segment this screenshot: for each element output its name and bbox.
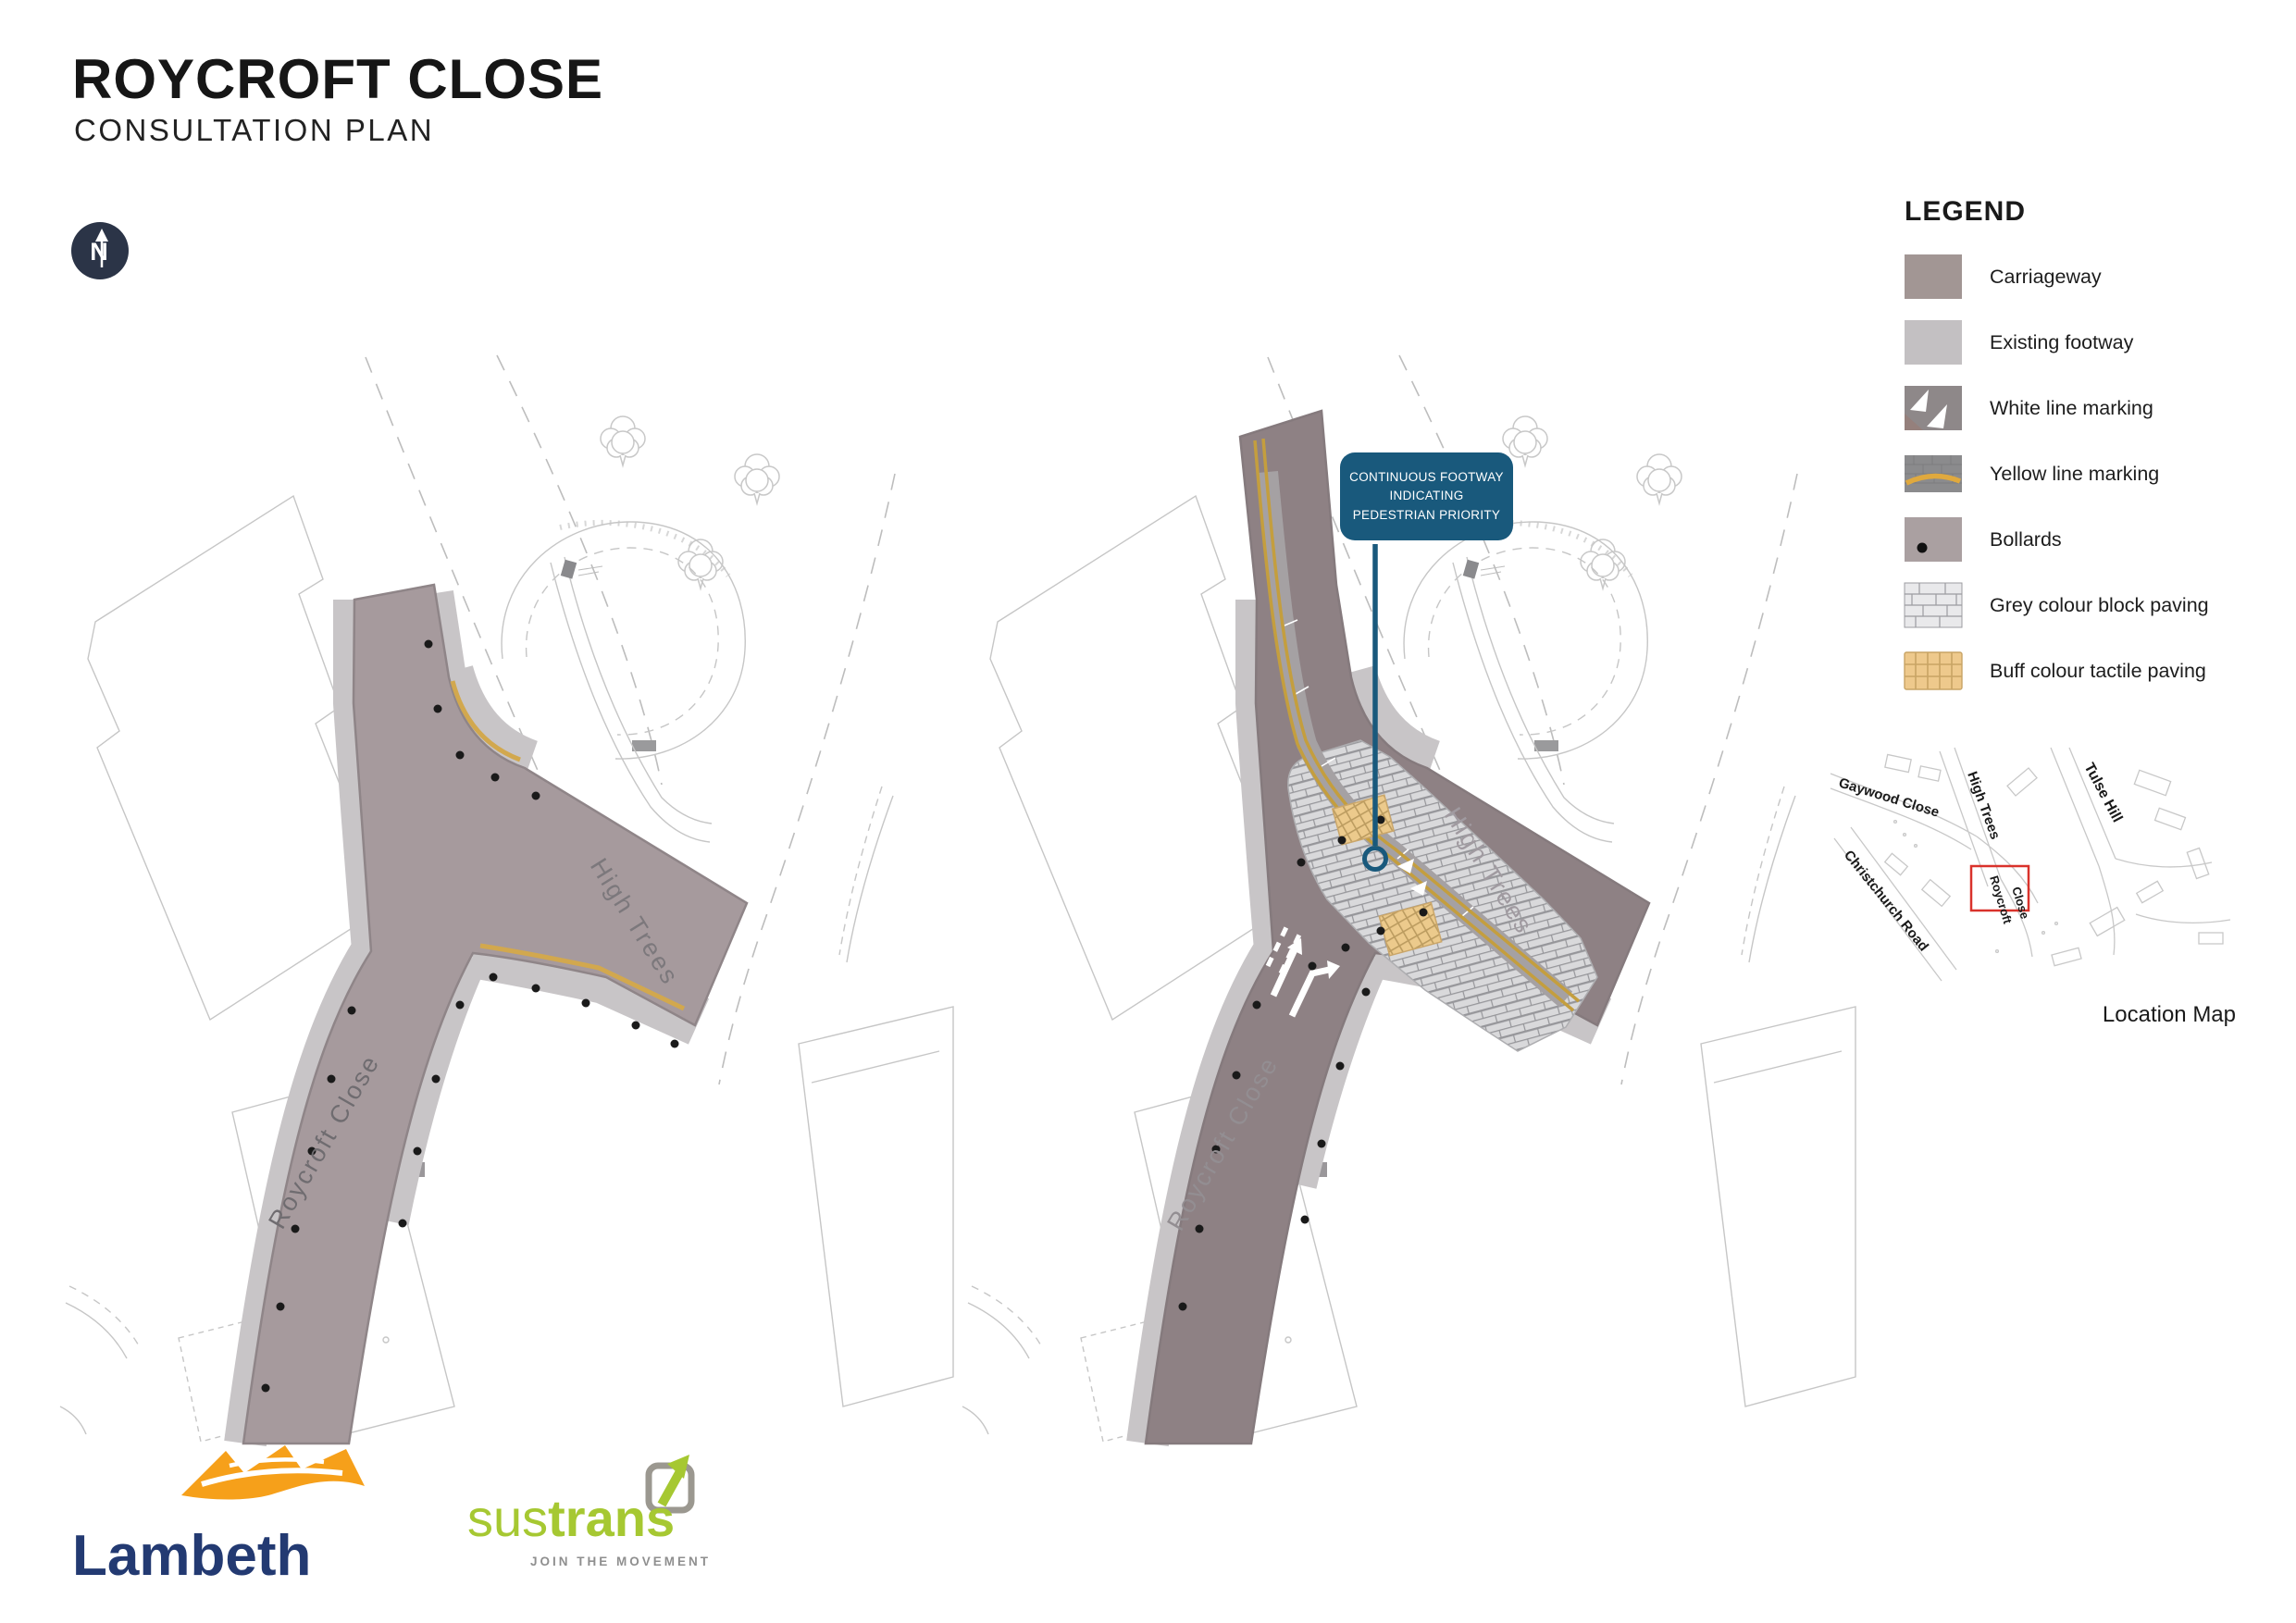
lambeth-logo: Lambeth: [63, 1434, 368, 1615]
north-arrow-icon: N: [69, 220, 130, 286]
title-block: ROYCROFT CLOSE CONSULTATION PLAN: [72, 52, 603, 148]
left-plan-existing: High Trees Roycroft Close: [60, 352, 953, 1443]
white-line-swatch-icon: [1905, 386, 1964, 430]
location-map-caption: Location Map: [1831, 1002, 2240, 1028]
legend-item-label: Buff colour tactile paving: [1990, 660, 2206, 683]
grey-block-paving-swatch-icon: [1905, 583, 1964, 627]
legend-item-label: Bollards: [1990, 528, 2062, 551]
legend-item-existing-footway: Existing footway: [1905, 319, 2275, 365]
page-subtitle: CONSULTATION PLAN: [74, 113, 603, 148]
consultation-plan-sheet: ROYCROFT CLOSE CONSULTATION PLAN N: [0, 0, 2296, 1623]
location-map: Gaywood Close High Trees Tulse Hill Chri…: [1831, 748, 2240, 1028]
sustrans-wordmark-light: sus: [467, 1489, 548, 1547]
legend-item-bollards: Bollards: [1905, 516, 2275, 563]
legend-item-white-line: White line marking: [1905, 385, 2275, 431]
existing-footway-swatch-icon: [1905, 320, 1964, 365]
legend-item-grey-block-paving: Grey colour block paving: [1905, 582, 2275, 628]
sustrans-tagline: JOIN THE MOVEMENT: [530, 1555, 711, 1568]
legend-title: LEGEND: [1905, 196, 2275, 228]
legend-item-label: Grey colour block paving: [1990, 594, 2209, 617]
legend-item-label: Yellow line marking: [1990, 463, 2159, 486]
carriageway-swatch-icon: [1905, 254, 1964, 299]
sustrans-logo: sustrans JOIN THE MOVEMENT: [467, 1458, 717, 1592]
buff-tactile-paving-swatch-icon: [1905, 652, 1964, 689]
location-map-streets: [1831, 748, 2230, 981]
yellow-line-swatch-icon: [1905, 455, 1964, 492]
legend-item-buff-tactile-paving: Buff colour tactile paving: [1905, 648, 2275, 694]
street-label-gaywood-close: Gaywood Close: [1837, 775, 1942, 821]
legend-item-label: White line marking: [1990, 397, 2153, 420]
north-letter: N: [90, 238, 108, 266]
lambeth-swoosh-icon: [181, 1445, 365, 1500]
svg-text:sustrans: sustrans: [467, 1489, 675, 1547]
bollards-swatch-icon: [1905, 517, 1964, 562]
sustrans-wordmark-bold2: trans: [548, 1489, 675, 1547]
legend-item-yellow-line: Yellow line marking: [1905, 451, 2275, 497]
street-label-roycroft: Roycroft: [1987, 873, 2015, 925]
continuous-footway-callout: CONTINUOUS FOOTWAY INDICATING PEDESTRIAN…: [1340, 452, 1513, 540]
legend-item-label: Existing footway: [1990, 331, 2133, 354]
legend-item-carriageway: Carriageway: [1905, 254, 2275, 300]
lambeth-wordmark: Lambeth: [72, 1524, 311, 1588]
legend: LEGEND Carriageway Existing footway: [1905, 196, 2275, 713]
callout-text: CONTINUOUS FOOTWAY INDICATING PEDESTRIAN…: [1349, 468, 1504, 525]
page-title: ROYCROFT CLOSE: [72, 52, 603, 107]
legend-item-label: Carriageway: [1990, 266, 2102, 289]
